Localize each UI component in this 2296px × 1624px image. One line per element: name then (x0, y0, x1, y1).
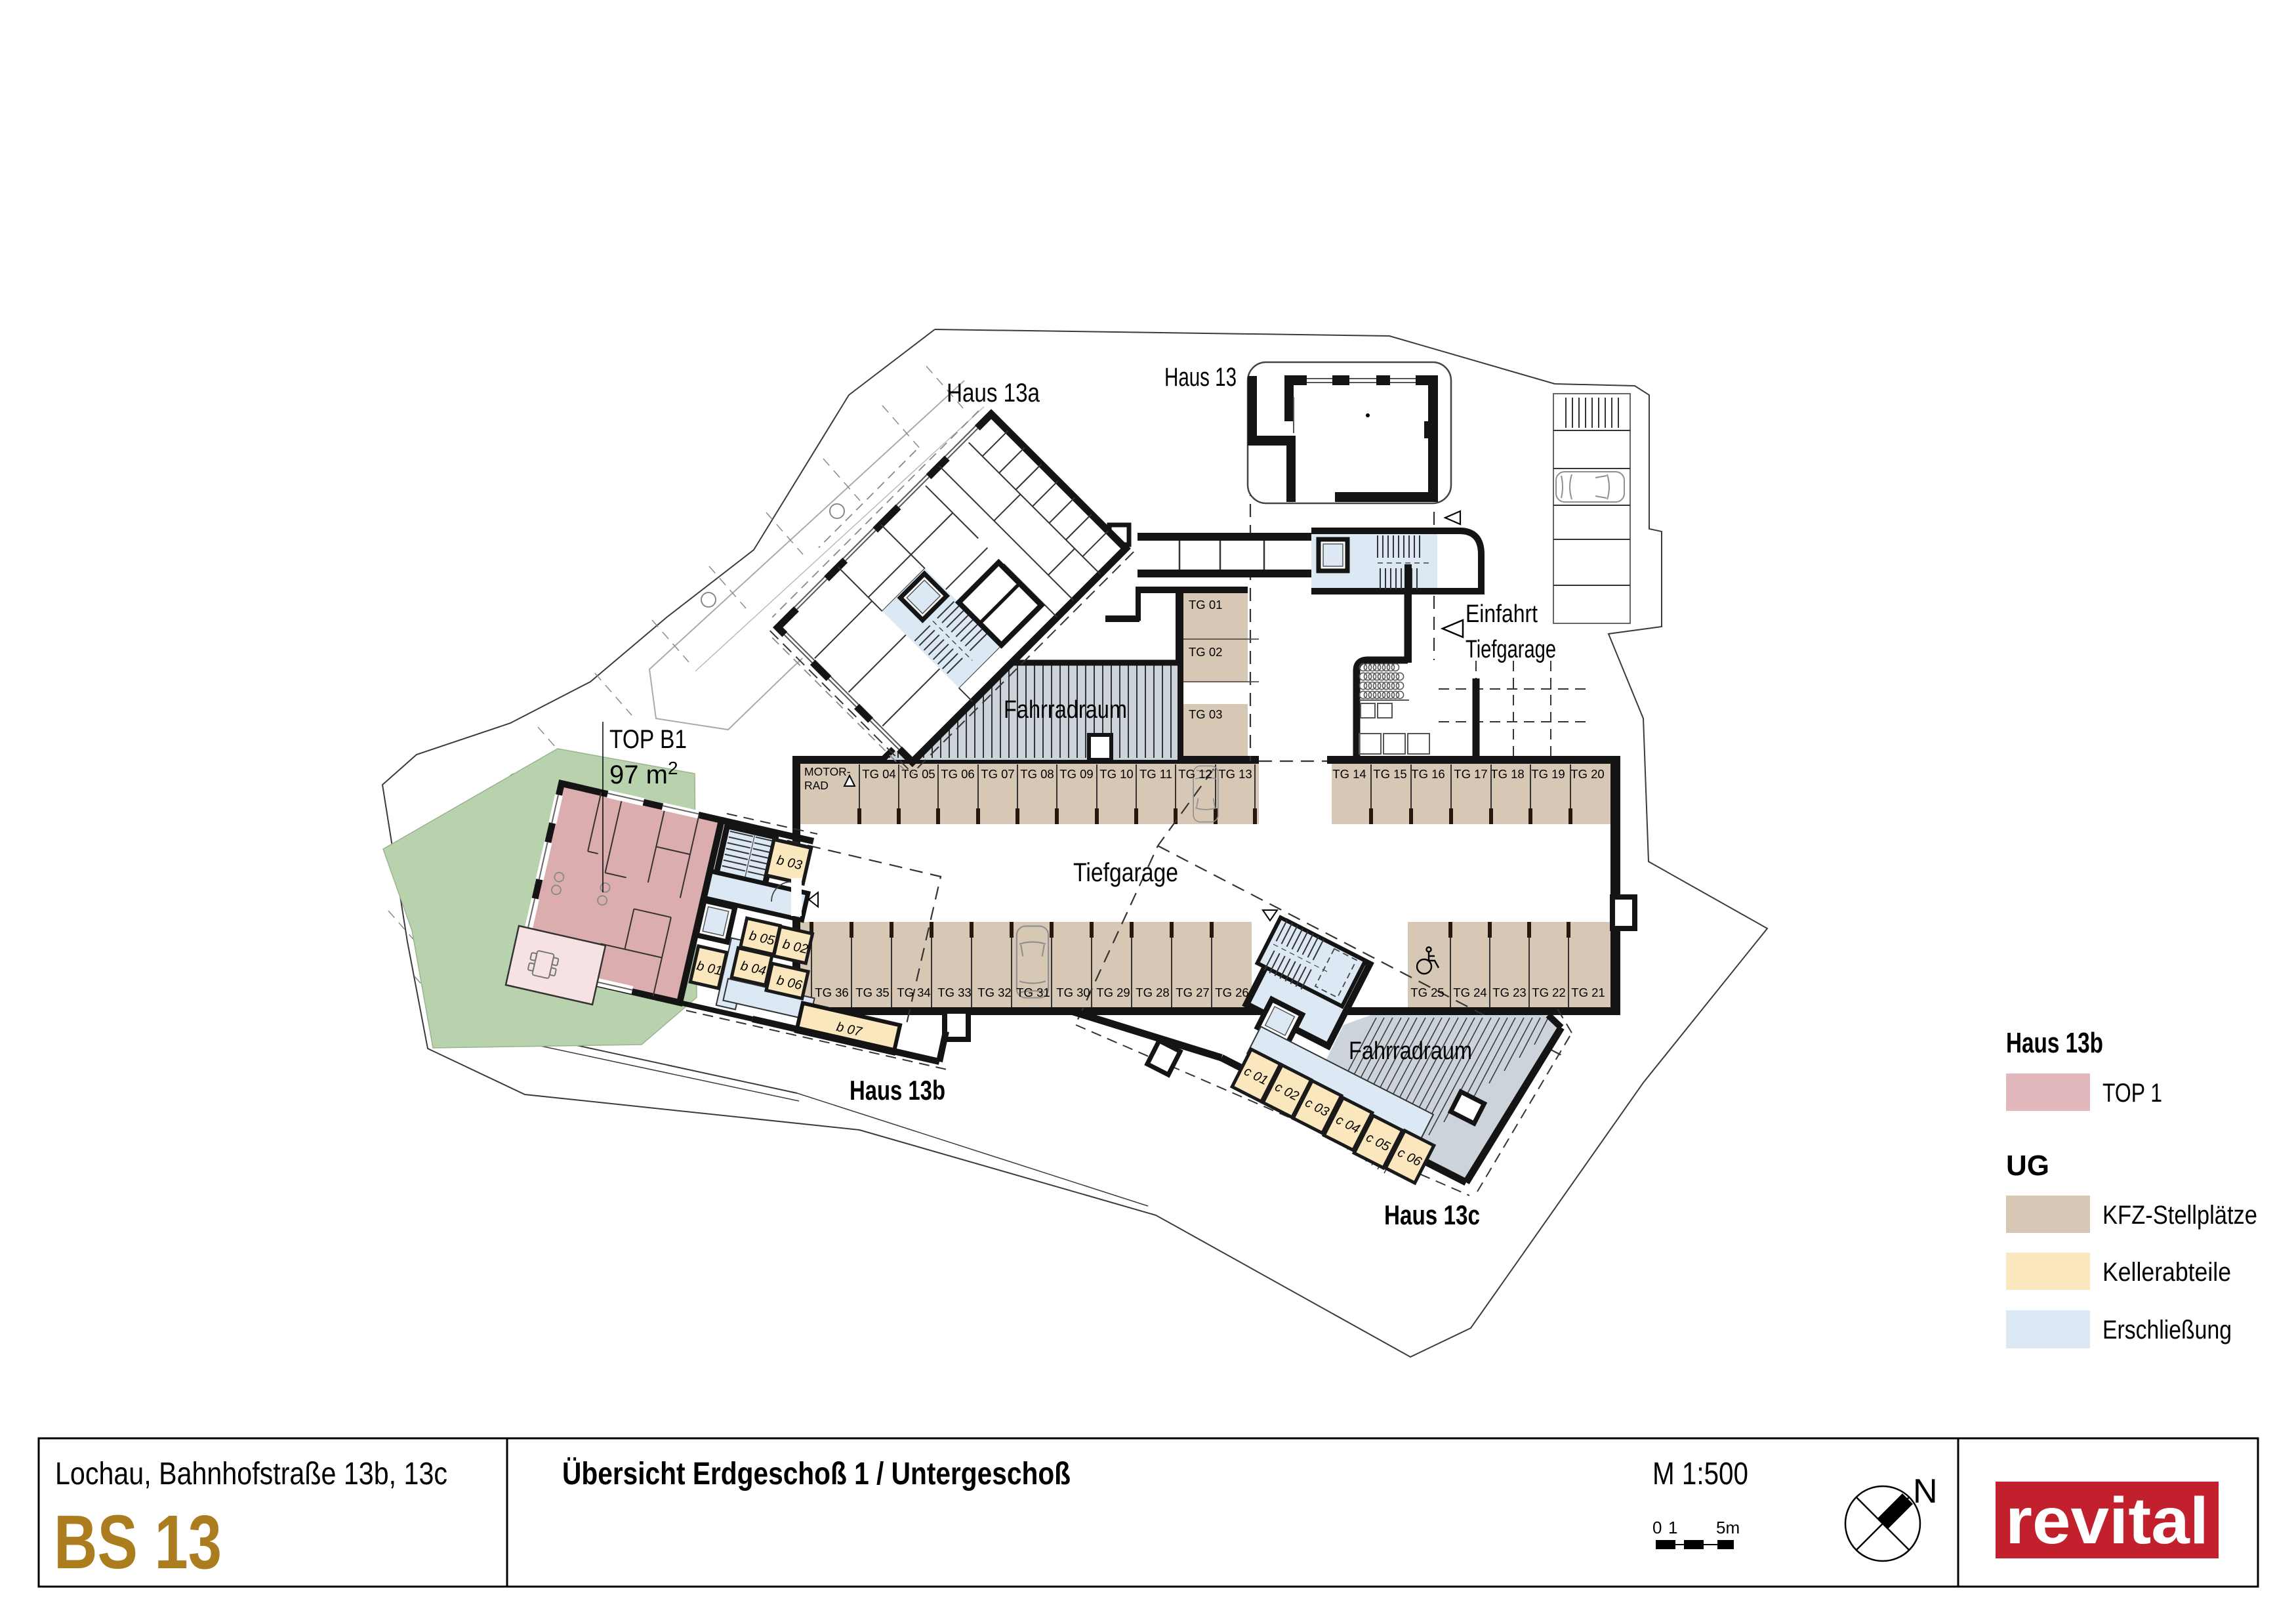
svg-text:N: N (1913, 1472, 1938, 1510)
svg-text:TG 29: TG 29 (1096, 986, 1130, 999)
svg-text:Tiefgarage: Tiefgarage (1073, 858, 1178, 887)
svg-text:TG 28: TG 28 (1136, 986, 1169, 999)
svg-text:TG 15: TG 15 (1373, 767, 1406, 781)
svg-text:Haus 13: Haus 13 (1164, 363, 1237, 392)
svg-text:TG 08: TG 08 (1020, 767, 1054, 781)
svg-text:TG 21: TG 21 (1571, 986, 1605, 999)
svg-text:TG 14: TG 14 (1332, 767, 1366, 781)
svg-text:TOP 1: TOP 1 (2102, 1079, 2162, 1108)
svg-text:Haus 13b: Haus 13b (2006, 1027, 2103, 1059)
svg-text:TG 12: TG 12 (1178, 767, 1212, 781)
svg-text:TG 22: TG 22 (1532, 986, 1565, 999)
svg-text:TG 25: TG 25 (1410, 986, 1444, 999)
svg-text:TG 07: TG 07 (981, 767, 1014, 781)
svg-text:Haus 13c: Haus 13c (1384, 1199, 1480, 1230)
svg-text:1: 1 (1668, 1518, 1677, 1537)
svg-text:TG 32: TG 32 (977, 986, 1011, 999)
svg-text:revital: revital (2005, 1484, 2209, 1558)
svg-text:TG 05: TG 05 (901, 767, 935, 781)
svg-text:Fahrradraum: Fahrradraum (1004, 696, 1127, 724)
svg-text:TG 18: TG 18 (1490, 767, 1524, 781)
svg-text:TG 23: TG 23 (1492, 986, 1526, 999)
svg-text:KFZ-Stellplätze: KFZ-Stellplätze (2102, 1201, 2257, 1230)
svg-text:0: 0 (1652, 1518, 1662, 1537)
svg-text:Übersicht Erdgeschoß 1 / Unter: Übersicht Erdgeschoß 1 / Untergeschoß (562, 1457, 1071, 1491)
svg-text:TG 35: TG 35 (855, 986, 889, 999)
svg-text:5m: 5m (1716, 1518, 1740, 1537)
svg-text:TG 19: TG 19 (1531, 767, 1565, 781)
svg-text:BS 13: BS 13 (54, 1499, 222, 1585)
svg-text:TG 33: TG 33 (937, 986, 971, 999)
svg-text:TG 16: TG 16 (1411, 767, 1445, 781)
svg-text:RAD: RAD (804, 779, 829, 792)
svg-text:TOP B1: TOP B1 (609, 725, 687, 754)
svg-text:TG 01: TG 01 (1189, 598, 1222, 612)
svg-text:Erschließung: Erschließung (2102, 1316, 2232, 1344)
svg-text:TG 27: TG 27 (1176, 986, 1209, 999)
svg-text:TG 06: TG 06 (941, 767, 974, 781)
svg-text:Lochau, Bahnhofstraße 13b, 13c: Lochau, Bahnhofstraße 13b, 13c (55, 1457, 447, 1491)
svg-text:TG 24: TG 24 (1453, 986, 1486, 999)
svg-text:Tiefgarage: Tiefgarage (1466, 636, 1556, 663)
svg-text:Haus 13a: Haus 13a (947, 379, 1040, 407)
svg-text:TG 11: TG 11 (1139, 767, 1172, 781)
svg-text:97 m2: 97 m2 (609, 758, 678, 789)
svg-text:TG 31: TG 31 (1016, 986, 1050, 999)
svg-text:TG 13: TG 13 (1218, 767, 1252, 781)
svg-text:TG 17: TG 17 (1454, 767, 1487, 781)
svg-text:Kellerabteile: Kellerabteile (2102, 1258, 2231, 1287)
svg-text:Einfahrt: Einfahrt (1466, 600, 1538, 628)
svg-text:TG 26: TG 26 (1215, 986, 1248, 999)
svg-text:MOTOR-: MOTOR- (804, 765, 851, 778)
svg-text:Haus 13b: Haus 13b (850, 1075, 945, 1106)
svg-text:Fahrradraum: Fahrradraum (1349, 1037, 1472, 1065)
svg-text:TG 03: TG 03 (1189, 707, 1222, 721)
svg-text:TG 10: TG 10 (1099, 767, 1133, 781)
svg-text:TG 36: TG 36 (815, 986, 848, 999)
svg-text:TG 30: TG 30 (1056, 986, 1090, 999)
svg-text:TG 20: TG 20 (1570, 767, 1604, 781)
svg-text:TG 34: TG 34 (897, 986, 930, 999)
svg-text:M 1:500: M 1:500 (1652, 1457, 1748, 1491)
svg-text:TG 09: TG 09 (1059, 767, 1093, 781)
svg-text:TG 02: TG 02 (1189, 645, 1222, 659)
svg-text:UG: UG (2006, 1150, 2049, 1182)
svg-text:TG 04: TG 04 (862, 767, 895, 781)
